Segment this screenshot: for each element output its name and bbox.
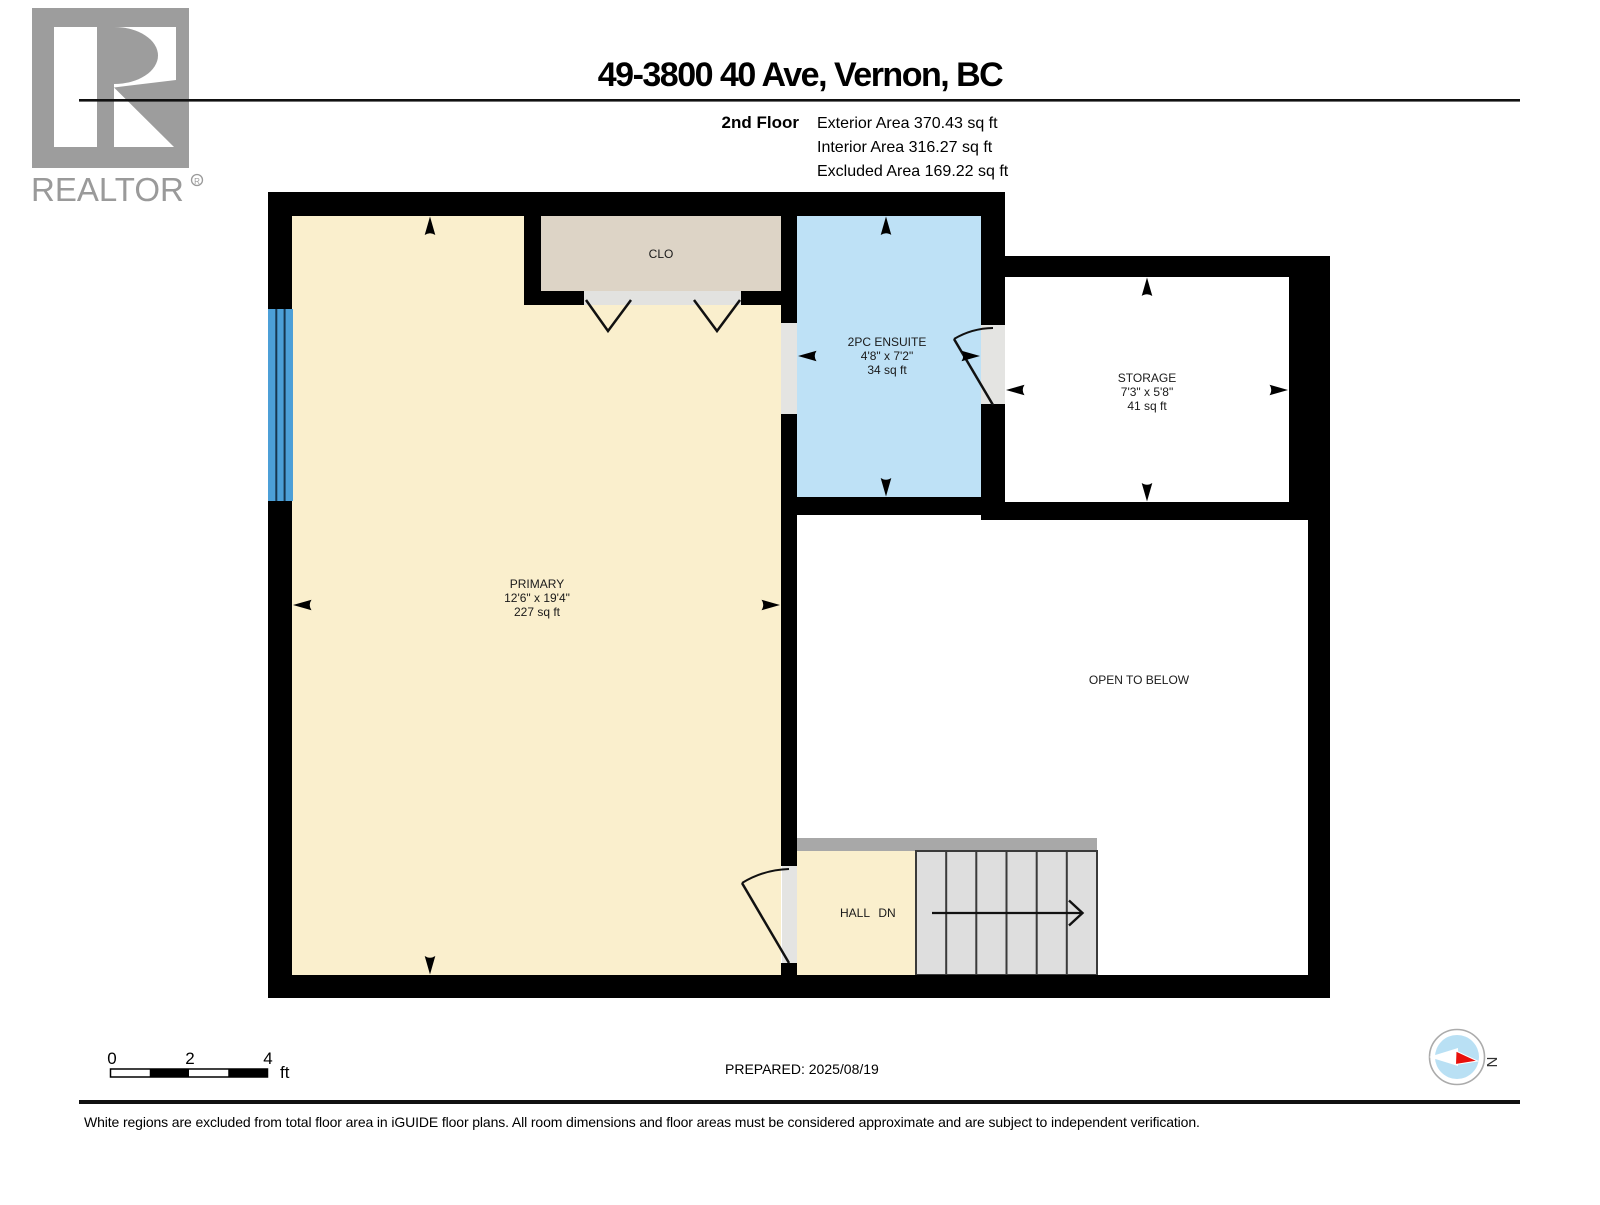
svg-text:49-3800 40 Ave, Vernon, BC: 49-3800 40 Ave, Vernon, BC <box>598 56 1003 94</box>
svg-text:227 sq ft: 227 sq ft <box>514 605 561 619</box>
svg-text:DN: DN <box>878 906 895 920</box>
svg-text:STORAGE: STORAGE <box>1118 371 1176 385</box>
svg-text:N: N <box>1483 1057 1500 1068</box>
svg-text:White regions are excluded fro: White regions are excluded from total fl… <box>84 1114 1200 1130</box>
svg-text:PREPARED: 2025/08/19: PREPARED: 2025/08/19 <box>725 1061 879 1077</box>
svg-text:7'3" x 5'8": 7'3" x 5'8" <box>1121 385 1173 399</box>
svg-text:HALL: HALL <box>840 906 870 920</box>
svg-text:2: 2 <box>185 1049 194 1068</box>
svg-text:OPEN TO BELOW: OPEN TO BELOW <box>1089 673 1190 687</box>
svg-text:CLO: CLO <box>649 247 674 261</box>
svg-text:2nd Floor: 2nd Floor <box>722 113 800 132</box>
svg-text:0: 0 <box>107 1049 116 1068</box>
svg-text:4: 4 <box>263 1049 272 1068</box>
svg-text:R: R <box>194 177 200 186</box>
svg-text:12'6" x 19'4": 12'6" x 19'4" <box>504 591 570 605</box>
svg-text:PRIMARY: PRIMARY <box>510 577 564 591</box>
svg-text:Excluded Area 169.22 sq ft: Excluded Area 169.22 sq ft <box>817 163 1009 180</box>
svg-text:41 sq ft: 41 sq ft <box>1127 399 1167 413</box>
svg-text:ft: ft <box>280 1063 290 1082</box>
svg-text:4'8" x 7'2": 4'8" x 7'2" <box>861 349 913 363</box>
svg-text:REALTOR: REALTOR <box>31 171 184 208</box>
svg-text:Exterior Area 370.43 sq ft: Exterior Area 370.43 sq ft <box>817 115 998 132</box>
svg-text:Interior Area 316.27 sq ft: Interior Area 316.27 sq ft <box>817 139 993 156</box>
svg-text:2PC ENSUITE: 2PC ENSUITE <box>848 335 927 349</box>
svg-text:34 sq ft: 34 sq ft <box>867 363 907 377</box>
